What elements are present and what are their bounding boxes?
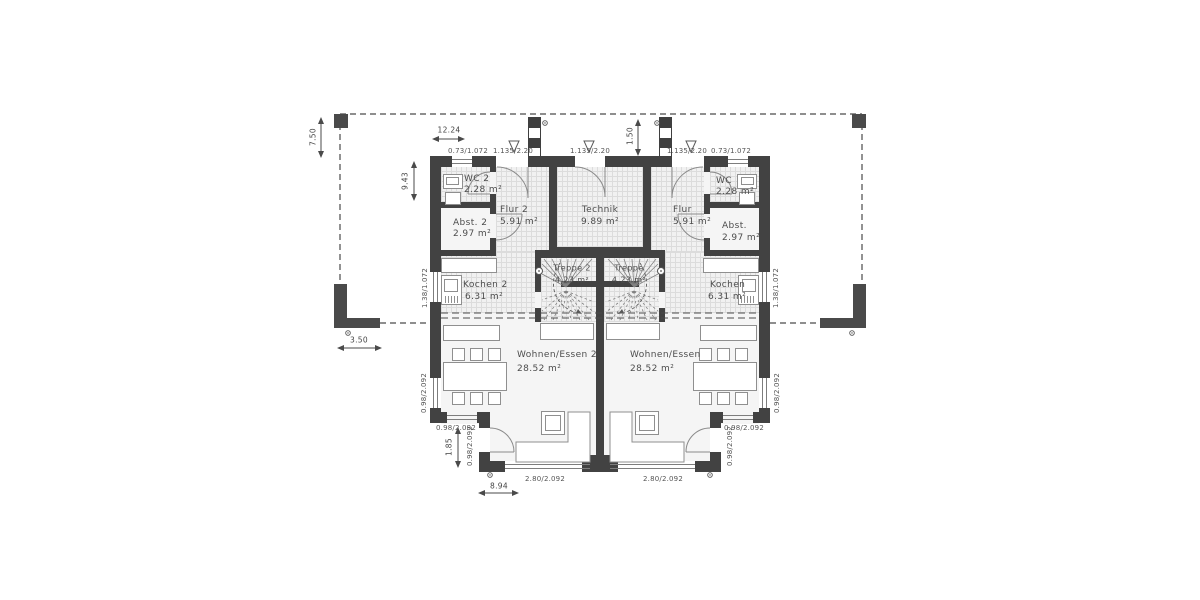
wall-segment (710, 423, 721, 428)
wall-segment (430, 302, 441, 378)
opening-label-kitchen-window-left: 1.38/1.072 (421, 268, 429, 308)
wc-sink-basin (446, 177, 459, 185)
room-label-wc2: WC 2 (464, 174, 489, 184)
wall-segment (535, 258, 541, 292)
wall-segment (643, 167, 651, 247)
kitchen-sink-basin (444, 279, 458, 292)
kitchen-drainer (445, 296, 459, 303)
chair (452, 348, 465, 361)
terrace-post-left (334, 114, 348, 128)
wall-segment (605, 156, 672, 167)
wall-segment (759, 156, 770, 272)
party-wall (596, 247, 604, 461)
dim-terrace-wall: 3.50 (350, 336, 368, 345)
opening-label-side-door-left: 0.98/2.092 (466, 426, 474, 466)
wall-segment (528, 156, 575, 167)
chair (735, 348, 748, 361)
opening-label-entrance-right: 1.135/2.20 (667, 147, 707, 155)
room-area-wohnen2: 28.52 m² (517, 364, 561, 374)
opening-label-east-window-right: 0.98/2.092 (773, 373, 781, 413)
wall-segment (704, 250, 759, 256)
room-area-wohnen: 28.52 m² (630, 364, 674, 374)
room-area-treppe2: 4.23 m² (555, 276, 589, 285)
opening-label-wc-window-right: 0.73/1.072 (711, 147, 751, 155)
chair (717, 392, 730, 405)
room-label-wohnen: Wohnen/Essen (630, 350, 701, 360)
wall-segment (535, 250, 665, 258)
room-label-treppe2: Treppe 2 (553, 264, 591, 273)
room-label-wc: WC (716, 176, 732, 186)
chair (488, 392, 501, 405)
chair (717, 348, 730, 361)
room-area-abst2: 2.97 m² (453, 229, 491, 239)
wall-segment (704, 156, 728, 167)
wall-segment (430, 156, 441, 272)
wall-segment (441, 250, 496, 256)
wall-segment (753, 412, 770, 423)
opening-label-terrace-window-right: 2.80/2.092 (643, 475, 683, 483)
room-area-abst: 2.97 m² (722, 233, 760, 243)
opening-label-west-window-left: 0.98/2.092 (420, 373, 428, 413)
wall-segment (759, 302, 770, 378)
dim-side-step: 1.85 (445, 438, 454, 456)
wall-segment (479, 461, 505, 472)
kitchen-counter (700, 325, 757, 341)
wall-segment (479, 423, 490, 428)
chair (735, 392, 748, 405)
sideboard (540, 323, 594, 340)
wall-segment (659, 308, 665, 322)
kitchen-counter (443, 325, 500, 341)
dim-overall-depth: 9.43 (401, 172, 410, 190)
room-area-wc2: 2.28 m² (464, 185, 502, 195)
wall-segment (549, 167, 557, 247)
chair (470, 348, 483, 361)
wc-sink-basin (741, 177, 754, 185)
opening-label-south-window-right: 0.98/2.092 (724, 424, 764, 432)
terrace-wall-right (820, 318, 866, 328)
wall-segment (490, 167, 496, 172)
opening-label-side-door-right: 0.98/2.092 (726, 426, 734, 466)
dim-roof-overhang: 7.50 (309, 128, 318, 146)
opening-label-entrance-left: 1.135/2.20 (493, 147, 533, 155)
room-label-abst: Abst. (722, 221, 747, 231)
wall-segment (535, 308, 541, 322)
room-area-flur: 5.91 m² (673, 217, 711, 227)
room-label-treppe: Treppe (614, 264, 643, 273)
wall-segment (695, 461, 721, 472)
kitchen-counter (441, 258, 497, 273)
room-area-treppe: 4.23 m² (612, 276, 646, 285)
chair (699, 392, 712, 405)
dim-overall-width: 12.24 (438, 126, 461, 135)
coffee-table-top (639, 415, 655, 431)
toilet (445, 192, 461, 205)
room-area-flur2: 5.91 m² (500, 217, 538, 227)
opening-label-south-window-left: 0.98/2.092 (436, 424, 476, 432)
wall-segment (477, 412, 490, 423)
room-area-wc: 2.28 m² (716, 187, 754, 197)
wall-segment (430, 412, 447, 423)
room-label-abst2: Abst. 2 (453, 218, 487, 228)
kitchen-counter (703, 258, 759, 273)
terrace-wall-left (334, 318, 380, 328)
opening-label-technik-door: 1.135/2.20 (570, 147, 610, 155)
wall-segment (659, 258, 665, 292)
room-label-technik: Technik (582, 205, 618, 215)
terrace-post-right (852, 114, 866, 128)
floor-plan: WC 2 2.28 m² Abst. 2 2.97 m² Flur 2 5.91… (0, 0, 1200, 600)
wall-segment (472, 156, 496, 167)
room-label-flur2: Flur 2 (500, 205, 528, 215)
chair (699, 348, 712, 361)
room-area-technik: 9.89 m² (581, 217, 619, 227)
opening-label-wc-window-left: 0.73/1.072 (448, 147, 488, 155)
chair (470, 392, 483, 405)
room-label-wohnen2: Wohnen/Essen 2 (517, 350, 597, 360)
room-label-kochen2: Kochen 2 (463, 280, 508, 290)
room-label-flur: Flur (673, 205, 692, 215)
wall-segment (704, 167, 710, 172)
chair (488, 348, 501, 361)
room-label-kochen: Kochen (710, 280, 745, 290)
room-area-kochen: 6.31 m² (708, 292, 746, 302)
opening-label-kitchen-window-right: 1.38/1.072 (772, 268, 780, 308)
dining-table (693, 362, 757, 391)
dim-entry-recess: 1.50 (626, 127, 635, 145)
coffee-table-top (545, 415, 561, 431)
room-area-kochen2: 6.31 m² (465, 292, 503, 302)
dim-front-section: 8.94 (490, 482, 508, 491)
sideboard (606, 323, 660, 340)
wall-segment (710, 412, 723, 423)
chair (452, 392, 465, 405)
opening-label-terrace-window-left: 2.80/2.092 (525, 475, 565, 483)
dining-table (443, 362, 507, 391)
